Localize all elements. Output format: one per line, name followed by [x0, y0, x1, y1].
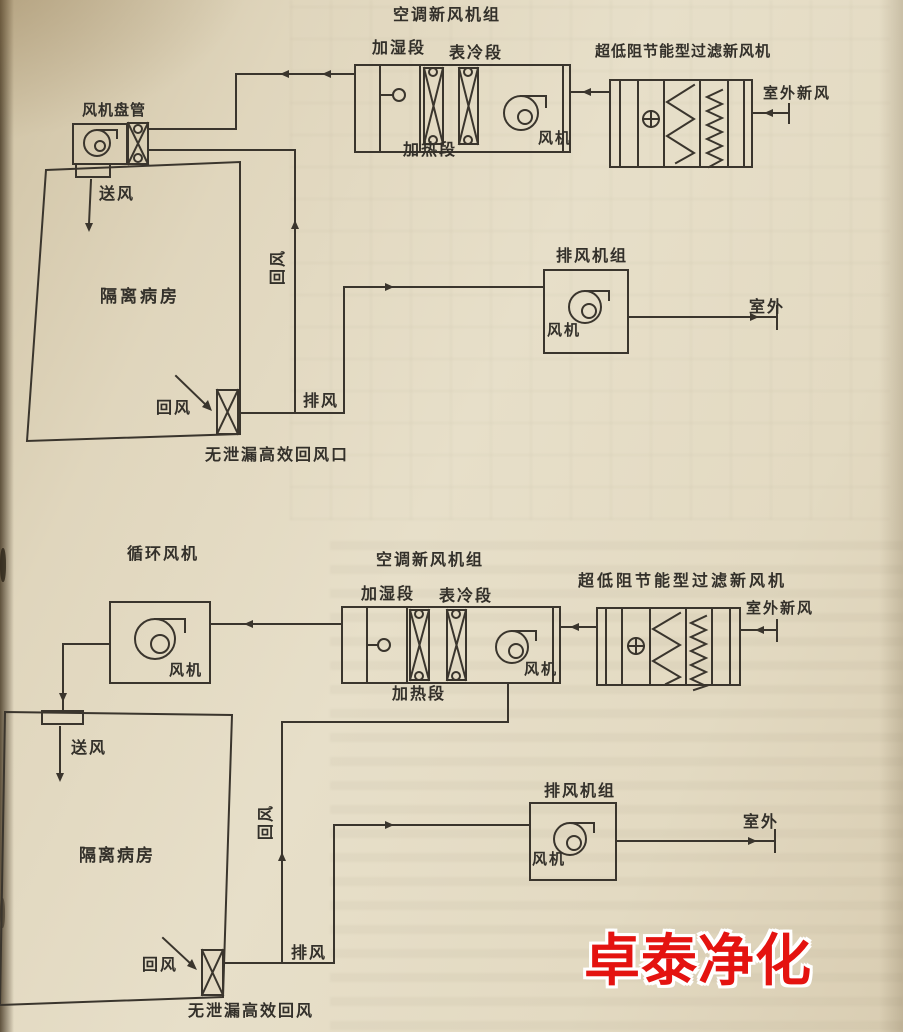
- outdoor-fresh-label-top: 室外新风: [763, 86, 831, 103]
- exhaust-duct-bottom: [223, 821, 530, 963]
- heating-label-bottom: 加热段: [392, 686, 446, 704]
- cooling-label-top: 表冷段: [449, 45, 503, 63]
- ahu-fan-label-bottom: 风机: [524, 662, 558, 679]
- flow-arrow: [85, 223, 93, 232]
- filter-title-top: 超低阻节能型过滤新风机: [595, 44, 771, 61]
- flow-arrow: [322, 70, 331, 78]
- company-watermark: 卓泰净化: [584, 916, 812, 997]
- coil-icon: [410, 610, 429, 680]
- flow-arrow: [764, 109, 773, 117]
- filter-title-bottom: 超低阻节能型过滤新风机: [578, 573, 787, 591]
- hepa-filter-icon: [691, 616, 706, 690]
- circfan-to-room-line: [59, 644, 110, 710]
- flow-arrow: [244, 620, 253, 628]
- scanned-book-page: 空调新风机组 加湿段 表冷段 加热段 风机 超低阻节能型过滤新风机 室外新风 风…: [0, 0, 903, 1032]
- return-air-inlet-icon: [202, 950, 223, 995]
- flow-arrow: [385, 283, 394, 291]
- coil-icon: [459, 68, 478, 144]
- coil-icon: [447, 610, 466, 680]
- flow-arrow: [755, 626, 764, 634]
- humidify-label-top: 加湿段: [372, 40, 426, 58]
- humidify-label-bottom: 加湿段: [361, 586, 415, 604]
- exhaust-fan-unit-top: [544, 270, 628, 353]
- outdoor-fresh-label-bottom: 室外新风: [746, 601, 814, 618]
- ahu-title-top: 空调新风机组: [393, 7, 501, 25]
- flow-arrow: [56, 773, 64, 782]
- supply-label-top: 送风: [99, 186, 135, 204]
- ahu-fan-label-top: 风机: [538, 131, 572, 148]
- fan-icon: [84, 130, 117, 156]
- flow-arrow: [582, 88, 591, 96]
- outdoor-label-bottom: 室外: [743, 814, 779, 832]
- circfan-title: 循环风机: [127, 546, 199, 564]
- exhaust-duct-top: [238, 283, 544, 413]
- filter-to-ahu-line-bottom: [560, 623, 597, 631]
- humidifier-icon: [380, 89, 405, 101]
- inlet-label-bottom: 无泄漏高效回风: [188, 1003, 314, 1021]
- outdoor-exhaust-line-bottom: [616, 830, 775, 852]
- return-duct-bottom: [278, 683, 508, 962]
- top-diagram: [27, 65, 789, 441]
- flow-arrow: [280, 70, 289, 78]
- outdoor-label-top: 室外: [749, 299, 785, 317]
- flow-arrow: [291, 220, 299, 229]
- circle-plus-icon: [628, 638, 644, 654]
- coil-icon: [128, 123, 148, 164]
- coarse-filter-icon: [667, 85, 694, 163]
- return-duct-vlabel-bottom: 回风: [258, 804, 276, 840]
- fan-icon: [135, 619, 185, 659]
- humidifier-icon: [367, 639, 390, 651]
- return-label-bottom: 回风: [142, 957, 178, 975]
- coil-icon: [424, 68, 443, 144]
- flow-arrow: [570, 623, 579, 631]
- fancoil-title: 风机盘管: [82, 103, 146, 120]
- coarse-filter-icon: [653, 613, 680, 684]
- ward-label-bottom: 隔离病房: [79, 847, 155, 866]
- heating-label-top: 加热段: [403, 142, 457, 160]
- outdoor-fresh-line-bottom: [740, 620, 777, 641]
- filter-to-ahu-line-top: [570, 88, 610, 96]
- flow-arrow: [748, 837, 757, 845]
- outdoor-fresh-line-top: [752, 104, 789, 123]
- flow-arrow: [59, 693, 67, 702]
- hepa-filter-icon: [707, 90, 722, 167]
- exhaust-fan-label-bottom: 风机: [532, 852, 566, 869]
- exhaust-duct-label-bottom: 排风: [291, 945, 327, 963]
- supply-air-arrow-top: [85, 180, 93, 232]
- inlet-label-top: 无泄漏高效回风口: [205, 447, 349, 465]
- return-duct-vlabel-top: 回风: [270, 249, 288, 285]
- exhaust-title-bottom: 排风机组: [544, 783, 616, 801]
- cooling-label-bottom: 表冷段: [439, 588, 493, 606]
- filter-unit-top: [610, 80, 752, 167]
- return-label-top: 回风: [156, 400, 192, 418]
- fan-icon: [504, 96, 546, 130]
- fan-icon: [569, 291, 609, 323]
- circle-plus-icon: [643, 111, 659, 127]
- exhaust-duct-label-top: 排风: [303, 393, 339, 411]
- flow-arrow: [278, 852, 286, 861]
- ahu-to-circfan-line: [210, 620, 342, 628]
- supply-duct-top: [148, 70, 355, 129]
- flow-arrow: [385, 821, 394, 829]
- circfan-fan-label: 风机: [169, 663, 203, 680]
- return-air-inlet-icon: [217, 390, 238, 434]
- filter-unit-bottom: [597, 608, 740, 690]
- exhaust-title-top: 排风机组: [556, 248, 628, 266]
- ward-label-top: 隔离病房: [100, 288, 180, 307]
- supply-label-bottom: 送风: [71, 740, 107, 758]
- fan-icon: [496, 631, 536, 663]
- supply-diffuser: [76, 164, 110, 177]
- supply-air-arrow-bottom: [56, 727, 64, 782]
- ahu-title-bottom: 空调新风机组: [376, 552, 484, 570]
- exhaust-fan-label-top: 风机: [547, 323, 581, 340]
